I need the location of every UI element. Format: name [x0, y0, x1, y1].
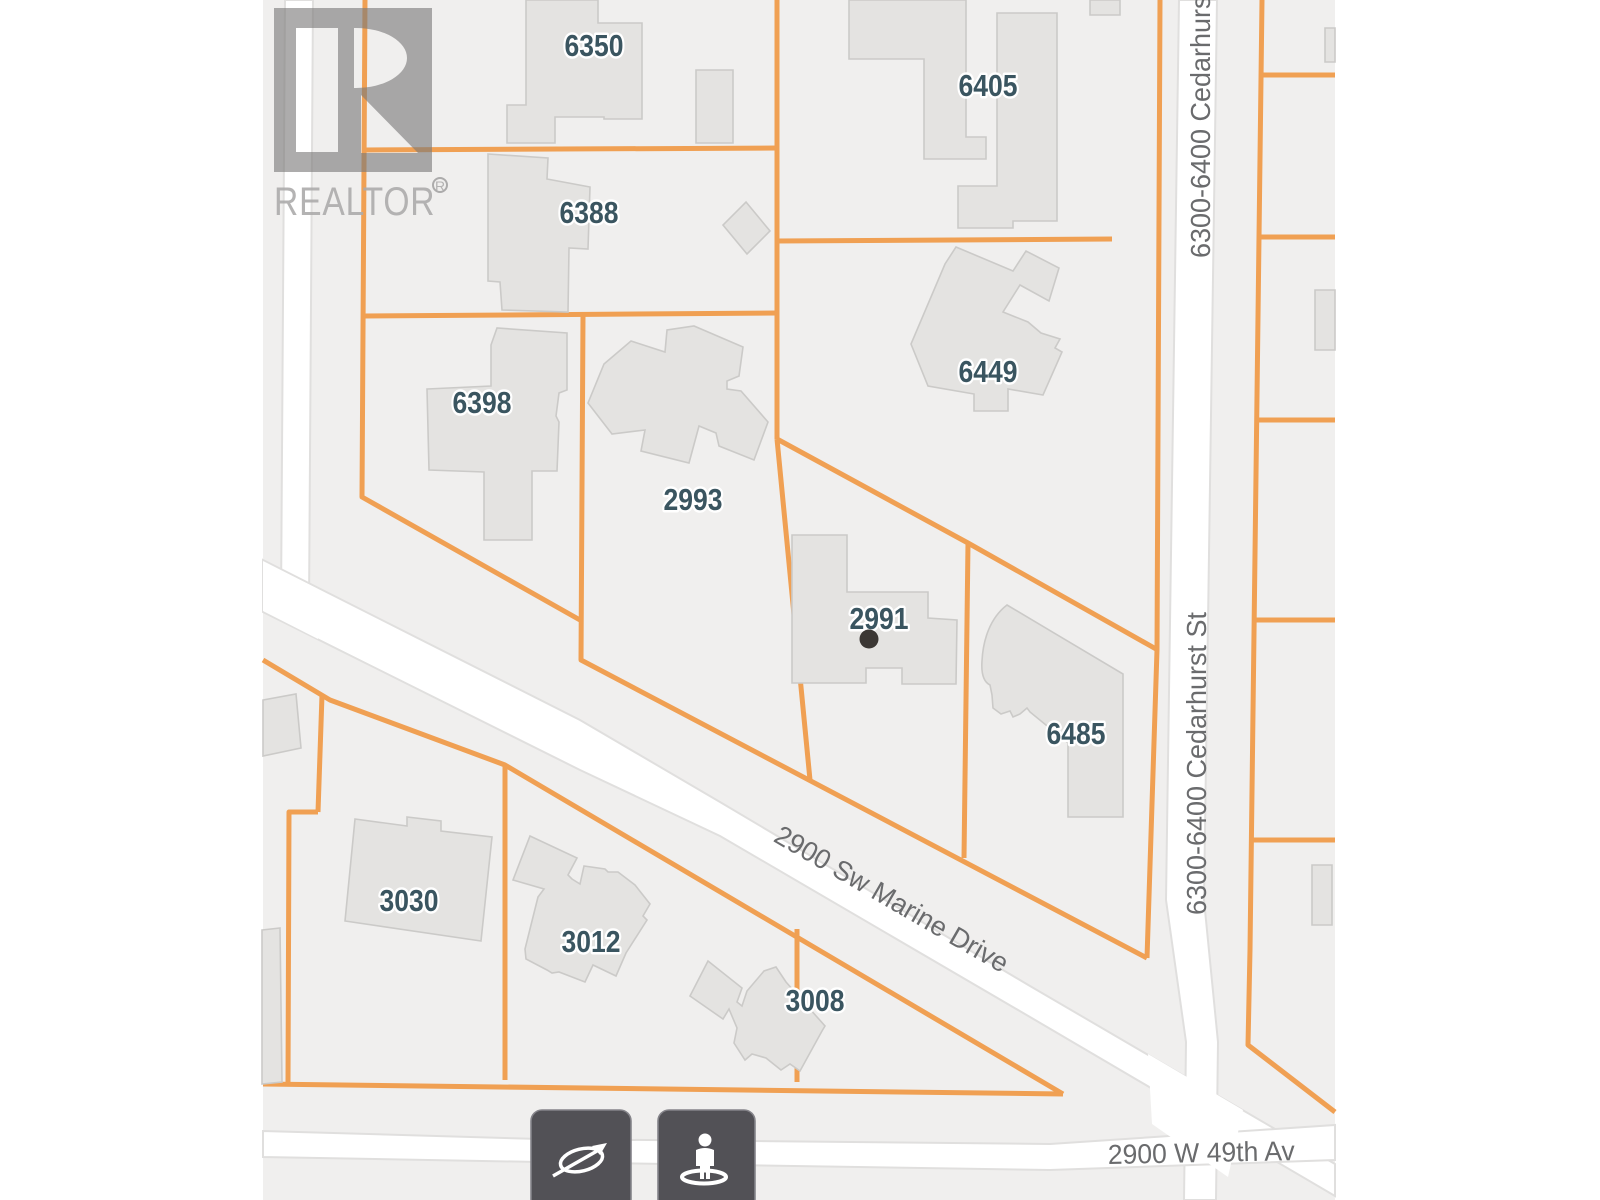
svg-text:6300-6400 Cedarhurst St: 6300-6400 Cedarhurst St	[1181, 612, 1212, 915]
svg-text:2900 W 49th Av: 2900 W 49th Av	[1107, 1135, 1295, 1170]
svg-text:6449: 6449	[959, 354, 1018, 389]
svg-text:6300-6400 Cedarhurst St: 6300-6400 Cedarhurst St	[1185, 0, 1216, 258]
svg-text:3008: 3008	[786, 983, 845, 1018]
svg-text:2991: 2991	[850, 601, 909, 636]
svg-text:2993: 2993	[664, 482, 723, 517]
svg-text:6405: 6405	[959, 68, 1018, 103]
svg-text:3012: 3012	[562, 924, 621, 959]
svg-text:6485: 6485	[1047, 716, 1106, 751]
svg-text:R: R	[435, 178, 445, 194]
svg-text:3030: 3030	[380, 883, 439, 918]
svg-text:6350: 6350	[565, 28, 624, 63]
svg-text:6388: 6388	[560, 195, 619, 230]
svg-text:6398: 6398	[453, 385, 512, 420]
svg-text:REALTOR: REALTOR	[274, 179, 435, 223]
